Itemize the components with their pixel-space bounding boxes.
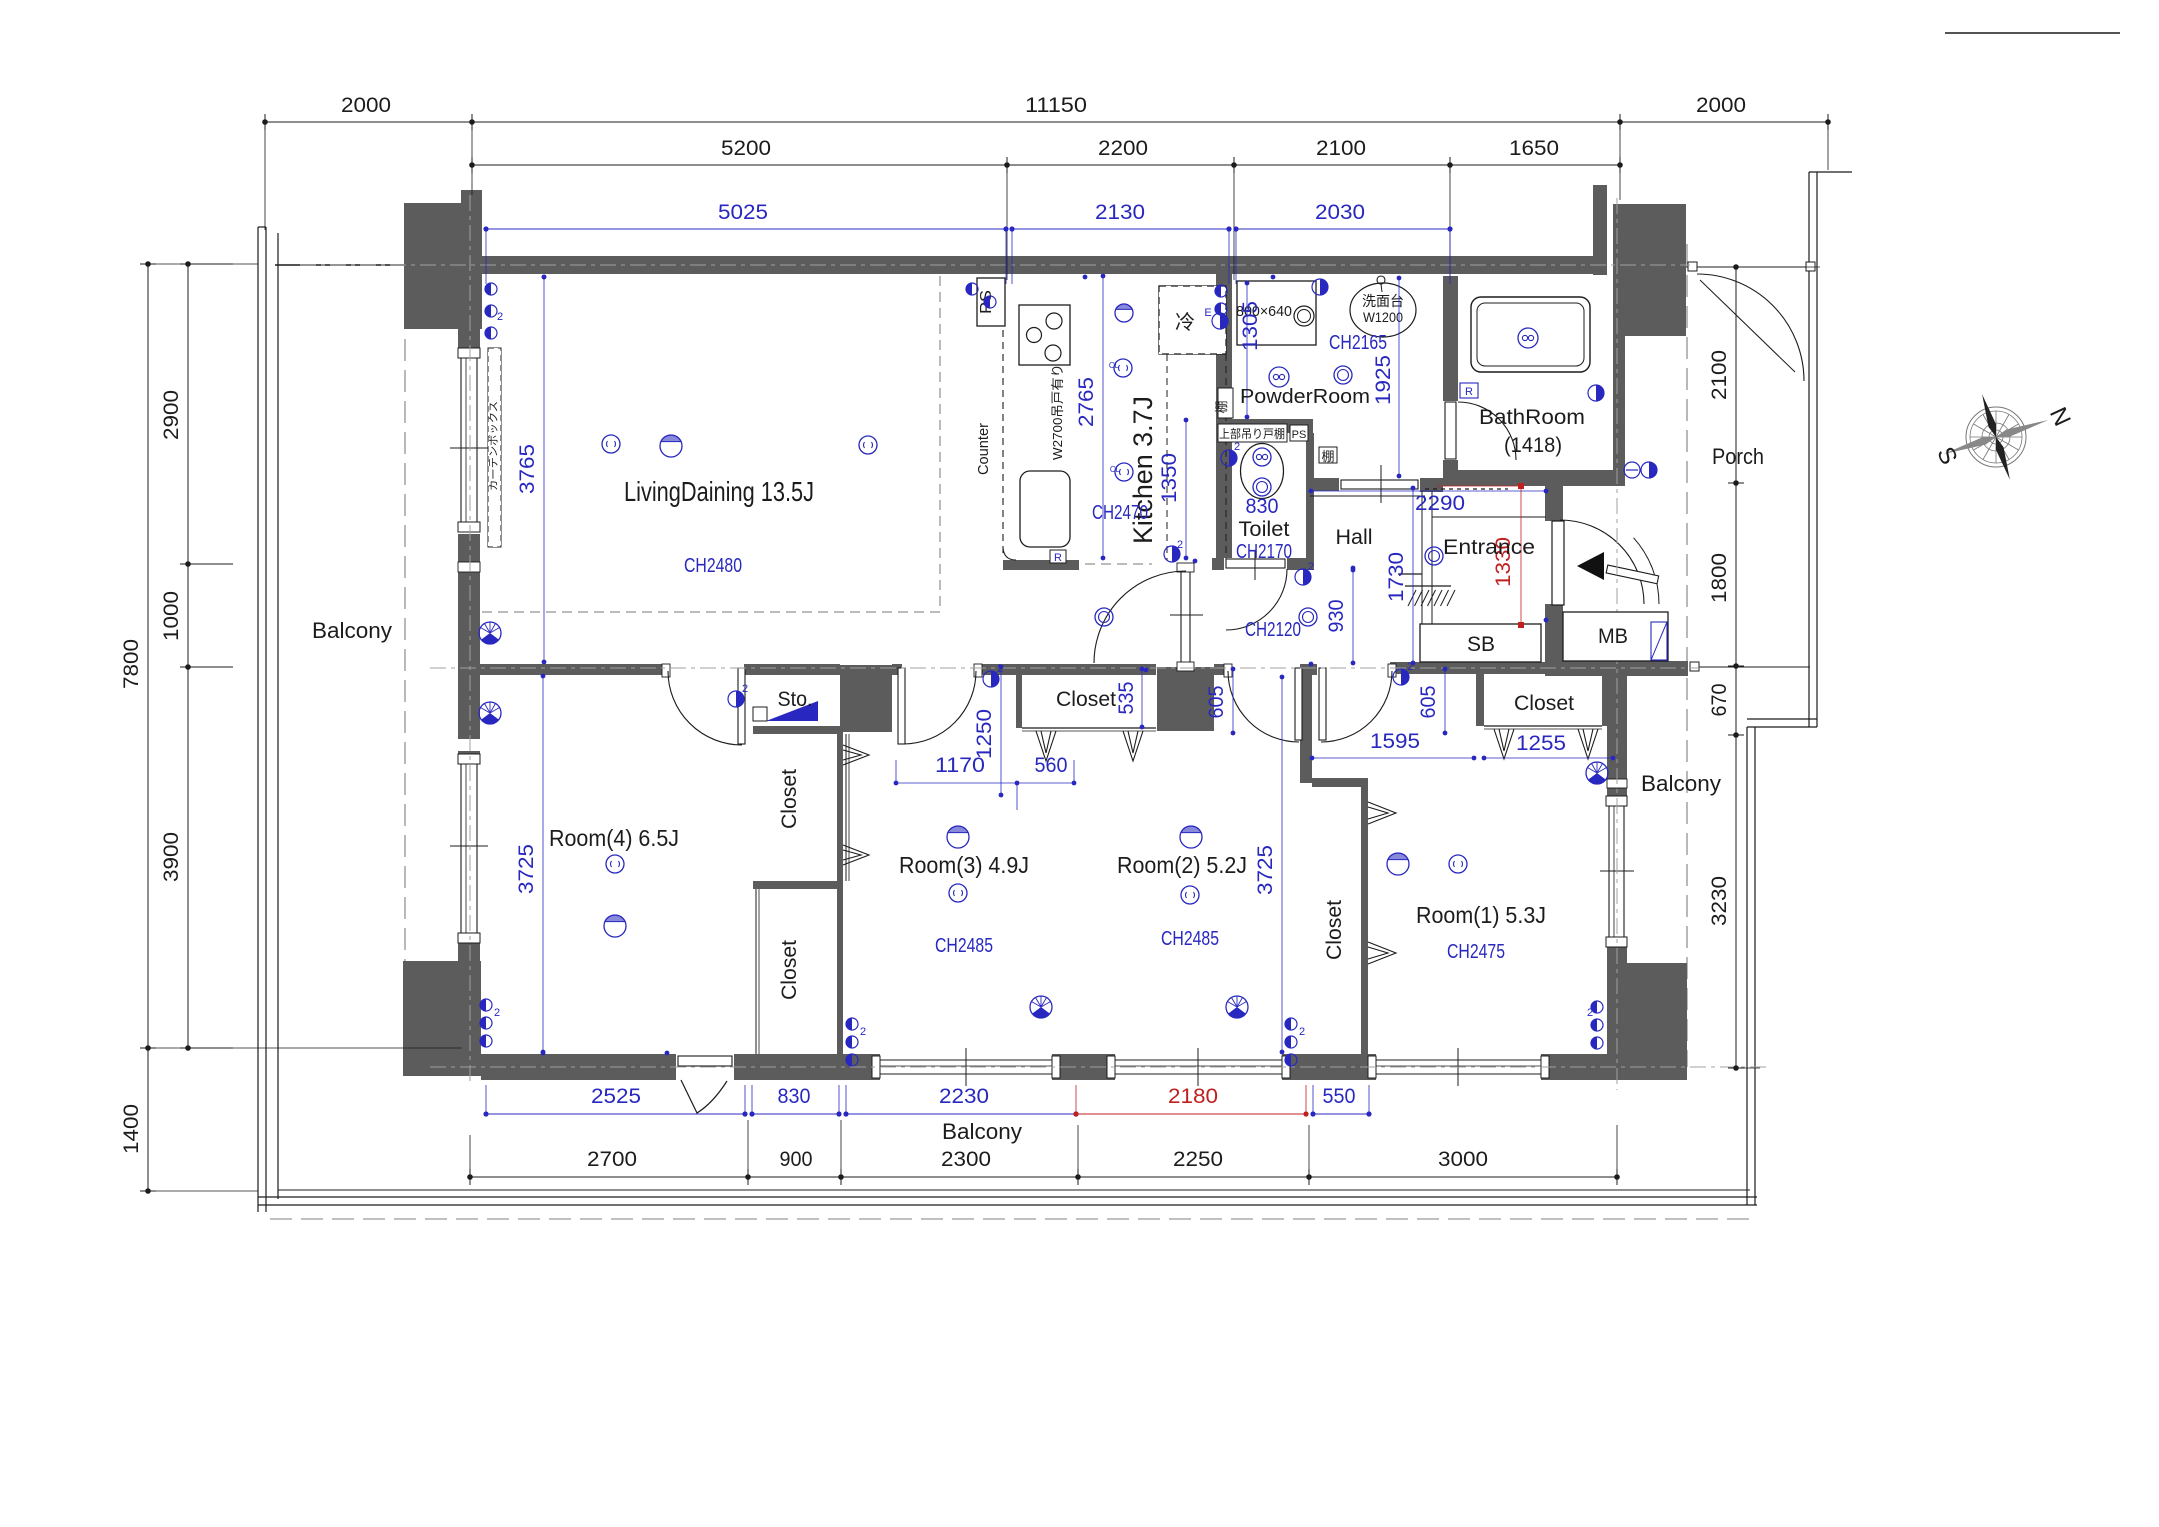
svg-text:CH2480: CH2480 bbox=[684, 555, 742, 577]
svg-text:2130: 2130 bbox=[1095, 201, 1145, 224]
svg-text:2: 2 bbox=[1234, 441, 1240, 453]
svg-text:3725: 3725 bbox=[515, 844, 538, 894]
svg-text:5025: 5025 bbox=[718, 201, 768, 224]
svg-text:7800: 7800 bbox=[120, 639, 143, 689]
svg-text:Entrance: Entrance bbox=[1443, 536, 1535, 559]
svg-text:CL: CL bbox=[1110, 465, 1121, 474]
svg-text:Room(4) 6.5J: Room(4) 6.5J bbox=[549, 825, 679, 851]
svg-text:900: 900 bbox=[780, 1148, 813, 1171]
svg-text:棚: 棚 bbox=[1321, 449, 1334, 464]
svg-text:2180: 2180 bbox=[1168, 1085, 1218, 1108]
svg-text:2030: 2030 bbox=[1315, 201, 1365, 224]
svg-text:Closet: Closet bbox=[778, 940, 801, 1000]
svg-text:MB: MB bbox=[1598, 625, 1628, 648]
svg-text:1170: 1170 bbox=[935, 754, 985, 777]
svg-text:W2700吊戸有り: W2700吊戸有り bbox=[1050, 364, 1065, 460]
svg-text:3230: 3230 bbox=[1708, 876, 1731, 926]
svg-text:BathRoom: BathRoom bbox=[1479, 406, 1585, 429]
svg-text:1255: 1255 bbox=[1516, 732, 1566, 755]
svg-text:Room(1) 5.3J: Room(1) 5.3J bbox=[1416, 902, 1546, 928]
svg-text:830: 830 bbox=[778, 1085, 811, 1108]
svg-text:W1200: W1200 bbox=[1363, 309, 1403, 325]
svg-text:670: 670 bbox=[1708, 684, 1731, 717]
svg-text:(1418): (1418) bbox=[1504, 434, 1562, 457]
svg-text:560: 560 bbox=[1035, 754, 1068, 777]
svg-text:2: 2 bbox=[1407, 661, 1413, 673]
svg-text:2: 2 bbox=[494, 1007, 500, 1019]
svg-text:2250: 2250 bbox=[1173, 1148, 1223, 1171]
svg-text:830: 830 bbox=[1246, 495, 1279, 518]
svg-text:Room(2) 5.2J: Room(2) 5.2J bbox=[1117, 852, 1247, 878]
svg-text:CH2485: CH2485 bbox=[1161, 928, 1219, 950]
svg-text:535: 535 bbox=[1115, 682, 1138, 715]
svg-text:2525: 2525 bbox=[591, 1085, 641, 1108]
svg-text:PowderRoom: PowderRoom bbox=[1240, 386, 1370, 408]
svg-text:洗面台: 洗面台 bbox=[1362, 293, 1404, 309]
svg-text:1400: 1400 bbox=[120, 1104, 143, 1154]
svg-text:2200: 2200 bbox=[1098, 137, 1148, 160]
svg-text:CH2475: CH2475 bbox=[1447, 941, 1505, 963]
svg-text:930: 930 bbox=[1325, 600, 1348, 633]
svg-text:Room(3) 4.9J: Room(3) 4.9J bbox=[899, 852, 1029, 878]
svg-text:2000: 2000 bbox=[1696, 94, 1746, 117]
svg-text:PS: PS bbox=[1292, 429, 1307, 441]
svg-text:CH2170: CH2170 bbox=[1236, 541, 1292, 563]
svg-text:上部吊り戸棚: 上部吊り戸棚 bbox=[1219, 426, 1285, 441]
svg-text:Closet: Closet bbox=[778, 769, 801, 829]
svg-text:Closet: Closet bbox=[1514, 692, 1574, 715]
svg-text:1650: 1650 bbox=[1509, 137, 1559, 160]
svg-text:Porch: Porch bbox=[1712, 444, 1764, 469]
svg-text:605: 605 bbox=[1205, 686, 1228, 719]
svg-text:3900: 3900 bbox=[160, 832, 183, 882]
svg-text:1000: 1000 bbox=[160, 591, 183, 641]
svg-text:2000: 2000 bbox=[341, 94, 391, 117]
svg-text:1730: 1730 bbox=[1385, 552, 1408, 602]
svg-text:E: E bbox=[1204, 307, 1211, 319]
svg-text:冷: 冷 bbox=[1175, 311, 1195, 334]
svg-text:Sto.: Sto. bbox=[778, 688, 813, 711]
svg-text:1305: 1305 bbox=[1239, 301, 1262, 351]
svg-text:Toilet: Toilet bbox=[1239, 518, 1290, 541]
svg-text:Closet: Closet bbox=[1056, 688, 1116, 711]
svg-text:11150: 11150 bbox=[1025, 94, 1087, 117]
svg-text:Balcony: Balcony bbox=[1641, 771, 1721, 796]
svg-text:CH2470: CH2470 bbox=[1092, 502, 1148, 524]
svg-text:1595: 1595 bbox=[1370, 730, 1420, 753]
svg-text:3765: 3765 bbox=[516, 444, 539, 494]
svg-text:2: 2 bbox=[1299, 1026, 1305, 1038]
svg-text:2300: 2300 bbox=[941, 1148, 991, 1171]
svg-text:605: 605 bbox=[1417, 686, 1440, 719]
svg-text:R: R bbox=[1465, 386, 1473, 398]
svg-text:1800: 1800 bbox=[1708, 553, 1731, 603]
svg-text:Counter: Counter bbox=[975, 423, 992, 475]
svg-text:2900: 2900 bbox=[160, 390, 183, 440]
svg-text:R: R bbox=[1054, 552, 1062, 564]
svg-text:2: 2 bbox=[1587, 1007, 1593, 1019]
svg-text:CH2120: CH2120 bbox=[1245, 619, 1301, 641]
svg-text:2: 2 bbox=[860, 1026, 866, 1038]
svg-text:2700: 2700 bbox=[587, 1148, 637, 1171]
svg-text:LivingDaining 13.5J: LivingDaining 13.5J bbox=[624, 476, 814, 507]
svg-text:棚: 棚 bbox=[1214, 400, 1229, 413]
svg-text:2230: 2230 bbox=[939, 1085, 989, 1108]
svg-text:2: 2 bbox=[497, 311, 503, 323]
svg-text:CH2485: CH2485 bbox=[935, 935, 993, 957]
svg-text:2: 2 bbox=[997, 663, 1003, 675]
svg-text:2: 2 bbox=[1177, 539, 1183, 551]
svg-text:Hall: Hall bbox=[1336, 526, 1373, 549]
svg-text:CL: CL bbox=[1109, 361, 1120, 370]
svg-text:550: 550 bbox=[1323, 1085, 1356, 1108]
svg-text:2100: 2100 bbox=[1708, 350, 1731, 400]
svg-text:2765: 2765 bbox=[1075, 377, 1098, 427]
svg-text:Balcony: Balcony bbox=[942, 1119, 1022, 1144]
svg-text:Closet: Closet bbox=[1323, 900, 1346, 960]
svg-text:1250: 1250 bbox=[973, 709, 996, 759]
svg-text:3000: 3000 bbox=[1438, 1148, 1488, 1171]
svg-text:CH2165: CH2165 bbox=[1329, 332, 1387, 354]
svg-text:2100: 2100 bbox=[1316, 137, 1366, 160]
svg-text:3725: 3725 bbox=[1254, 845, 1277, 895]
svg-text:SB: SB bbox=[1467, 633, 1495, 656]
svg-text:1925: 1925 bbox=[1372, 355, 1395, 405]
svg-text:カーテンボックス: カーテンボックス bbox=[488, 401, 500, 491]
svg-text:1350: 1350 bbox=[1158, 453, 1181, 503]
svg-text:5200: 5200 bbox=[721, 137, 771, 160]
svg-text:2: 2 bbox=[742, 683, 748, 695]
svg-text:2: 2 bbox=[1308, 561, 1314, 573]
svg-text:2290: 2290 bbox=[1415, 492, 1465, 515]
svg-text:Balcony: Balcony bbox=[312, 618, 392, 643]
